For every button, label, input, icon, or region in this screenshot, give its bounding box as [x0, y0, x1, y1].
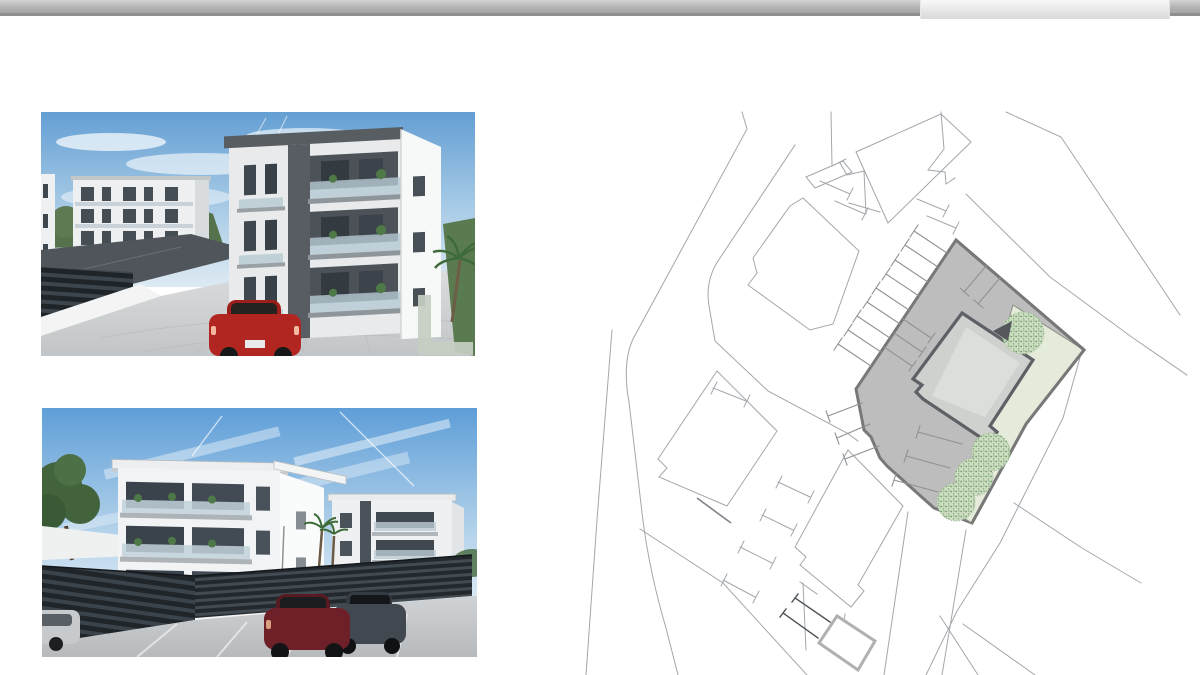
rendering-photo-bottom [42, 408, 477, 657]
parcel-divider-dark [697, 498, 731, 523]
shed-outline [819, 616, 875, 670]
site-plan [580, 95, 1200, 675]
window-top-tab[interactable] [920, 0, 1170, 19]
facade-core-stripe [288, 144, 310, 339]
rendering-1-image [41, 112, 475, 356]
site-plan-drawing [580, 95, 1200, 675]
tree-icon [937, 483, 975, 521]
rendering-2-image [42, 408, 477, 657]
page-canvas [0, 0, 1200, 675]
rendering-photo-top [41, 112, 475, 356]
